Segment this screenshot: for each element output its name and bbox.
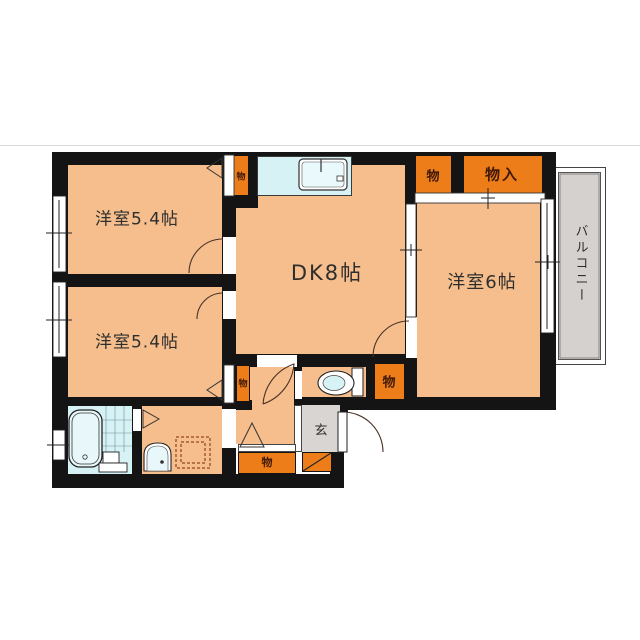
label-entrance: 玄: [314, 420, 327, 439]
wall-between-west-rooms: [68, 274, 224, 287]
floor-plan-canvas: 洋室5.4帖 洋室5.4帖 DK8帖 洋室6帖 物 物 物入 物 物 物 玄 バ…: [0, 0, 640, 640]
wall-toilet-west: [294, 354, 302, 405]
wall-bath-washroom: [132, 406, 142, 474]
bathroom-floor: [68, 406, 132, 474]
page-border-line: [0, 145, 640, 146]
label-closet-west1: 物: [236, 170, 245, 183]
label-closet-toilet: 物: [382, 372, 395, 391]
closet-south-door: [238, 444, 296, 452]
kitchen-counter: [257, 156, 352, 196]
wall-left: [52, 152, 68, 488]
wall-bath-north: [52, 397, 236, 406]
wall-toilet-east: [366, 354, 374, 400]
wall-kitchen-pocket-lip: [222, 194, 258, 208]
label-closet-hall: 物: [238, 377, 247, 390]
door-arc-entrance: [343, 412, 383, 452]
label-dining-kitchen: DK8帖: [291, 257, 363, 287]
wall-closet-divider: [452, 152, 463, 196]
label-balcony: バルコニー: [571, 224, 590, 304]
room-floor-west3: [417, 196, 543, 398]
washroom-floor: [142, 406, 222, 474]
label-west-room-1: 洋室5.4帖: [95, 205, 179, 230]
toilet-room-floor: [302, 367, 366, 398]
label-closet-north: 物: [426, 166, 439, 185]
label-west-room-2: 洋室5.4帖: [95, 328, 179, 353]
label-closet-south: 物: [262, 454, 273, 470]
label-closet-large: 物入: [485, 164, 519, 185]
label-west-room-3: 洋室6帖: [447, 268, 516, 294]
shoe-cabinet: [302, 452, 332, 472]
wall-bottom: [52, 474, 342, 488]
wall-entry-side: [330, 450, 344, 488]
